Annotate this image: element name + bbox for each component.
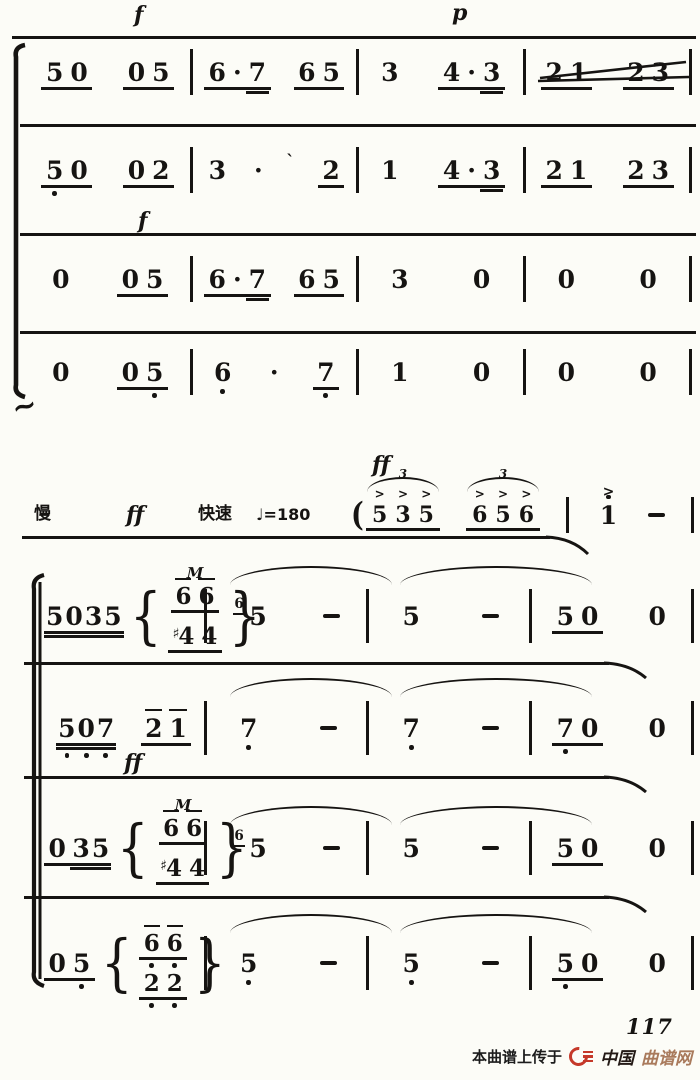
left-brace: { [130, 590, 162, 643]
eighth-underline [44, 978, 95, 981]
note-digit: 5 [403, 836, 420, 861]
note-digit: 0 [639, 360, 656, 385]
note-digit: 0 [70, 60, 87, 85]
sustain-dash [648, 513, 665, 516]
note-group: 4·3 [438, 158, 505, 183]
measure: 6·7 [193, 360, 357, 385]
metronome-marking: ♩=180 [256, 507, 310, 523]
note-digit: 4 [201, 625, 217, 648]
accent-mark: > [603, 484, 615, 500]
note-digit: 2 [145, 716, 162, 741]
sixteenth-underline [56, 747, 116, 750]
note-group: 6 [209, 360, 235, 385]
octave-dot-below [563, 749, 568, 754]
watermark-text: 本曲谱上传于 [472, 1046, 562, 1067]
note-group: 5 [245, 836, 271, 861]
barline [691, 936, 694, 990]
note-digit: 1 [570, 60, 587, 85]
octave-overline [144, 925, 160, 927]
augmentation-dot: · [270, 360, 279, 385]
left-brace: { [117, 822, 149, 875]
note-digit: 0 [65, 604, 82, 629]
chord-note-group: ♯44 [156, 857, 210, 880]
staff-row-2: 50023·`214·32123 [26, 144, 692, 196]
dynamic-ff-pickup: ff [372, 454, 390, 476]
note-group: 70 [552, 716, 603, 741]
octave-dot-below [246, 980, 251, 985]
chord-note-group: 22 [139, 972, 187, 995]
note-digit: 0 [639, 267, 656, 292]
brand-name-suffix: 曲谱网 [641, 1044, 692, 1069]
note-group: 7 [236, 716, 262, 741]
octave-dot-below [172, 963, 177, 968]
note-group: 5 [398, 836, 424, 861]
measure: 30 [359, 267, 523, 292]
note-digit: 6 [198, 585, 214, 608]
eighth-underline [159, 842, 207, 845]
note-digit: 2 [167, 972, 183, 995]
note-digit: 3 [391, 267, 408, 292]
sustain-dash [323, 614, 340, 617]
pickup-row: 5>3>5>3(6>5>6>31> [366, 492, 694, 538]
note-digit: 0 [128, 158, 145, 183]
barline [691, 497, 694, 533]
note-group: 65 [294, 60, 345, 85]
note-digit: 5 [249, 604, 266, 629]
staff-separator [20, 233, 696, 236]
note-group: 0 [553, 267, 579, 292]
brand-name-cn: 中国 [600, 1044, 634, 1069]
octave-dot-below [79, 984, 84, 989]
note-group: 1 [377, 158, 403, 183]
barline [691, 701, 694, 755]
left-brace: { [101, 937, 133, 990]
sustain-dash [320, 961, 337, 964]
note-group: 35 [70, 836, 111, 861]
chord-notes: M66♯44 [156, 817, 210, 880]
measure: 500 [532, 951, 692, 976]
note-digit: ♯4 [160, 857, 182, 880]
eighth-underline [141, 743, 192, 746]
brand-logo-icon [569, 1047, 593, 1066]
note-digit: 2 [545, 60, 562, 85]
octave-dot-below [103, 753, 108, 758]
chord-note-group: 66 [171, 585, 219, 608]
eighth-underline [541, 87, 592, 90]
triplet-number: 3 [499, 467, 507, 481]
octave-overline [145, 709, 162, 711]
note-digit: 6 [144, 932, 160, 955]
measure: 50721 [44, 716, 204, 741]
grace-note: 6 [233, 830, 244, 847]
note-digit: 5> [419, 504, 434, 526]
octave-dot-below [65, 753, 70, 758]
staff-row-6: 5072177700 [44, 698, 694, 758]
note-digit: 0 [78, 716, 95, 741]
eighth-underline [541, 185, 592, 188]
octave-overline [167, 925, 183, 927]
tie-slur [230, 678, 392, 697]
staff-row-3: 0056·7653000 [26, 253, 692, 305]
note-digit: 3 [652, 158, 669, 183]
tempo-fast-label: 快速 [198, 506, 232, 523]
note-digit: · [233, 60, 242, 85]
note-digit: 7 [249, 60, 266, 85]
barline [689, 49, 692, 95]
note-group: 0 [44, 836, 70, 861]
note-digit: 3 [483, 158, 500, 183]
stray-mark: ` [286, 152, 295, 172]
barline [689, 349, 692, 395]
measure: 700 [532, 716, 692, 741]
note-digit: 0 [581, 716, 598, 741]
separator-tail [546, 535, 590, 557]
page-number: 117 [626, 1014, 673, 1039]
note-digit: 0 [473, 360, 490, 385]
staff-row-7: 035{M66♯44}655500 [44, 800, 694, 896]
eighth-underline [41, 185, 92, 188]
separator-tail [604, 661, 648, 681]
sixteenth-underline [246, 91, 269, 93]
note-group: 5 [398, 604, 424, 629]
octave-dot-below [246, 745, 251, 750]
tempo-slow-label: 慢 [34, 506, 51, 523]
eighth-underline [41, 87, 92, 90]
measure: 2123 [526, 60, 690, 85]
octave-overline [175, 578, 191, 580]
note-group: 6·7 [204, 267, 271, 292]
octave-dot-below [409, 745, 414, 750]
note-digit: 3 [381, 60, 398, 85]
eighth-underline [123, 87, 174, 90]
note-digit: 5 [557, 604, 574, 629]
note-digit: 2 [627, 60, 644, 85]
note-digit: 5> [495, 504, 510, 526]
note-digit: 5 [403, 951, 420, 976]
note-group: 0 [553, 360, 579, 385]
eighth-underline [139, 957, 187, 960]
note-digit: 6 [298, 60, 315, 85]
note-digit: 6 [167, 932, 183, 955]
barline [689, 256, 692, 302]
note-digit: 3 [652, 60, 669, 85]
note-digit: 3 [483, 60, 500, 85]
chord-notes: 6622 [139, 932, 187, 995]
note-group: 0 [644, 716, 670, 741]
note-digit: 6 [163, 817, 179, 840]
note-digit: 0 [581, 604, 598, 629]
octave-overline [186, 810, 202, 812]
tie-slur [400, 678, 592, 697]
note-digit: 1 [570, 158, 587, 183]
note-digit: 7 [240, 716, 257, 741]
staff-separator [20, 124, 696, 127]
note-digit: 0 [473, 267, 490, 292]
eighth-underline [313, 387, 339, 390]
note-group: 21 [141, 716, 192, 741]
note-digit: 6 [209, 267, 226, 292]
note-digit: 0 [649, 604, 666, 629]
measure: 5 [369, 604, 529, 629]
measure: 00 [526, 267, 690, 292]
note-digit: 2 [144, 972, 160, 995]
octave-overline [163, 810, 179, 812]
chord-note-group: 66 [139, 932, 187, 955]
eighth-underline [44, 863, 70, 866]
note-digit: 5 [104, 604, 121, 629]
note-digit: 7 [403, 716, 420, 741]
octave-dot-below [52, 191, 57, 196]
note-digit: 7 [557, 716, 574, 741]
eighth-underline [156, 882, 210, 885]
staff-separator [20, 331, 696, 334]
sixteenth-underline [246, 298, 269, 300]
grace-note: 6 [233, 598, 244, 615]
measure: 05{6622} [44, 932, 204, 995]
note-digit: 2 [152, 158, 169, 183]
note-group: 7 [313, 360, 339, 385]
sustain-dash [482, 614, 499, 617]
note-digit: 6 [186, 817, 202, 840]
measure: 005 [26, 267, 190, 292]
sustain-dash [323, 846, 340, 849]
note-digit: 0 [649, 836, 666, 861]
note-digit: 6 [209, 60, 226, 85]
separator-tail [604, 895, 648, 915]
note-digit: 7 [317, 360, 334, 385]
note-digit: 3 [209, 158, 226, 183]
note-digit: 0 [122, 267, 139, 292]
note-digit: · [467, 158, 476, 183]
barline [691, 589, 694, 643]
note-digit: 5 [146, 360, 163, 385]
staff-separator [24, 896, 609, 899]
note-digit: 6 [214, 360, 231, 385]
measure: 5005 [26, 60, 190, 85]
dynamic-f-staff1: f [134, 4, 143, 26]
dynamic-f-staff3: f [138, 210, 147, 232]
note-digit: 5 [92, 836, 109, 861]
note-group: 5 [245, 604, 271, 629]
chord-note-group: 66 [159, 817, 207, 840]
eighth-underline [117, 294, 168, 297]
note-digit: 0 [558, 267, 575, 292]
eighth-underline [44, 631, 124, 634]
note-group: 3 [377, 60, 403, 85]
eighth-underline [56, 743, 116, 746]
note-digit: 0 [581, 951, 598, 976]
note-digit: 1 [600, 503, 617, 528]
note-digit: 0 [122, 360, 139, 385]
measure: 5 [207, 951, 367, 976]
note-digit: 3 [85, 604, 102, 629]
octave-dot-below [409, 980, 414, 985]
note-digit: 0 [649, 716, 666, 741]
measure: 5035{M66♯44} [44, 585, 204, 648]
note-group: 23 [623, 158, 674, 183]
augmentation-dot: · [254, 158, 263, 183]
staff-separator [24, 662, 609, 665]
barline [566, 497, 569, 533]
note-digit: 5 [146, 267, 163, 292]
staff-row-4: 0056·71000 [26, 346, 692, 398]
note-digit: 3 [72, 836, 89, 861]
staff-row-1: 50056·76534·32123 [26, 46, 692, 98]
sheet-music-page: 50056·76534·3212350023·`214·321230056·76… [0, 0, 700, 1080]
note-digit: 5 [557, 836, 574, 861]
measure: 34·3 [359, 60, 523, 85]
eighth-underline [438, 185, 505, 188]
note-digit: · [233, 267, 242, 292]
note-digit: 0 [649, 951, 666, 976]
measure: 500 [532, 604, 692, 629]
note-group: 0 [48, 267, 74, 292]
note-digit: 0 [558, 360, 575, 385]
note-digit: 5 [152, 60, 169, 85]
chord: {6622} [97, 932, 230, 995]
note-digit: 4 [443, 60, 460, 85]
barline [689, 147, 692, 193]
note-group: 5035 [44, 604, 124, 629]
eighth-underline [123, 185, 174, 188]
note-digit: 5 [46, 604, 63, 629]
note-digit: 2 [322, 158, 339, 183]
note-digit: 6 [298, 267, 315, 292]
eighth-underline [294, 87, 345, 90]
note-group: 1> [595, 503, 621, 528]
triplet-group: 6>5>6>3 [466, 504, 540, 526]
dynamic-ff-staff7: ff [124, 752, 142, 774]
eighth-underline [466, 528, 540, 531]
note-group: 3 [204, 158, 230, 183]
dynamic-ff-tempo: ff [126, 504, 144, 526]
measure: 5002 [26, 158, 190, 183]
dynamic-p-staff1: p [452, 2, 467, 24]
measure: 5 [369, 951, 529, 976]
eighth-underline [552, 863, 603, 866]
note-group: 21 [541, 60, 592, 85]
grace-note-group: 65 [232, 836, 271, 861]
note-digit: 1 [391, 360, 408, 385]
note-digit: 6> [519, 504, 534, 526]
eighth-underline [204, 87, 271, 90]
note-group: 05 [123, 60, 174, 85]
note-digit: 0 [52, 360, 69, 385]
note-digit: 6 [175, 585, 191, 608]
eighth-underline [552, 978, 603, 981]
note-digit: 2 [545, 158, 562, 183]
note-digit: ♯4 [173, 625, 195, 648]
measure: 6·765 [193, 267, 357, 292]
eighth-underline [168, 650, 222, 653]
triplet-number: 3 [399, 467, 407, 481]
octave-dot-below [149, 963, 154, 968]
eighth-underline [70, 863, 111, 866]
sixteenth-underline [70, 867, 111, 870]
note-digit: 6> [472, 504, 487, 526]
measure: 005 [26, 360, 190, 385]
note-group: 507 [56, 716, 116, 741]
note-group: 0 [468, 360, 494, 385]
note-digit: 1 [169, 716, 186, 741]
note-digit: 0 [49, 836, 66, 861]
note-group: 0 [635, 267, 661, 292]
note-group: 0 [635, 360, 661, 385]
note-digit: 4 [189, 857, 205, 880]
note-group: 5 [398, 951, 424, 976]
octave-dot-below [149, 1003, 154, 1008]
measure: 2123 [526, 158, 690, 183]
sustain-dash [320, 726, 337, 729]
eighth-underline [294, 294, 345, 297]
note-group: 50 [41, 158, 92, 183]
measure: 7 [369, 716, 529, 741]
note-group: 0 [644, 951, 670, 976]
note-digit: 1 [381, 158, 398, 183]
note-group: 4·3 [438, 60, 505, 85]
note-group: 2 [318, 158, 344, 183]
octave-dot-below [152, 393, 157, 398]
eighth-underline [552, 743, 603, 746]
octave-dot-below [172, 1003, 177, 1008]
note-digit: 0 [70, 158, 87, 183]
note-group: 0 [644, 604, 670, 629]
note-group: 50 [552, 951, 603, 976]
note-group: 65 [294, 267, 345, 292]
note-digit: 4 [443, 158, 460, 183]
note-group: 05 [117, 360, 168, 385]
eighth-underline [623, 87, 674, 90]
note-group: 02 [123, 158, 174, 183]
note-group: 05 [117, 267, 168, 292]
note-group: 23 [623, 60, 674, 85]
staff-row-8: 05{6622}55500 [44, 915, 694, 1011]
note-digit: 5 [249, 836, 266, 861]
note-digit: 5 [557, 951, 574, 976]
note-digit: 2 [627, 158, 644, 183]
note-group: 50 [552, 836, 603, 861]
octave-overline [198, 578, 214, 580]
note-group: 0 [48, 360, 74, 385]
note-digit: 3> [395, 504, 410, 526]
note-digit: · [467, 60, 476, 85]
measure: 3·`2 [193, 158, 357, 183]
octave-dot-below [220, 389, 225, 394]
note-group: 5 [236, 951, 262, 976]
note-digit: 5 [403, 604, 420, 629]
note-digit: 5 [73, 951, 90, 976]
eighth-underline [204, 294, 271, 297]
staff-separator [24, 776, 609, 779]
octave-dot-below [323, 393, 328, 398]
eighth-underline [318, 185, 344, 188]
sharp-sign: ♯ [160, 858, 167, 874]
note-group: 6·7 [204, 60, 271, 85]
open-paren: ( [351, 497, 364, 534]
eighth-underline [623, 185, 674, 188]
sharp-sign: ♯ [173, 626, 180, 642]
note-digit: 7 [97, 716, 114, 741]
note-digit: 0 [581, 836, 598, 861]
note-group: 50 [41, 60, 92, 85]
note-digit: 0 [49, 951, 66, 976]
note-group: 05 [44, 951, 95, 976]
sustain-dash [482, 726, 499, 729]
barline [691, 821, 694, 875]
note-digit: 0 [128, 60, 145, 85]
measure: 5 [369, 836, 529, 861]
staff-row-5: 5035{M66♯44}655500 [44, 572, 694, 660]
